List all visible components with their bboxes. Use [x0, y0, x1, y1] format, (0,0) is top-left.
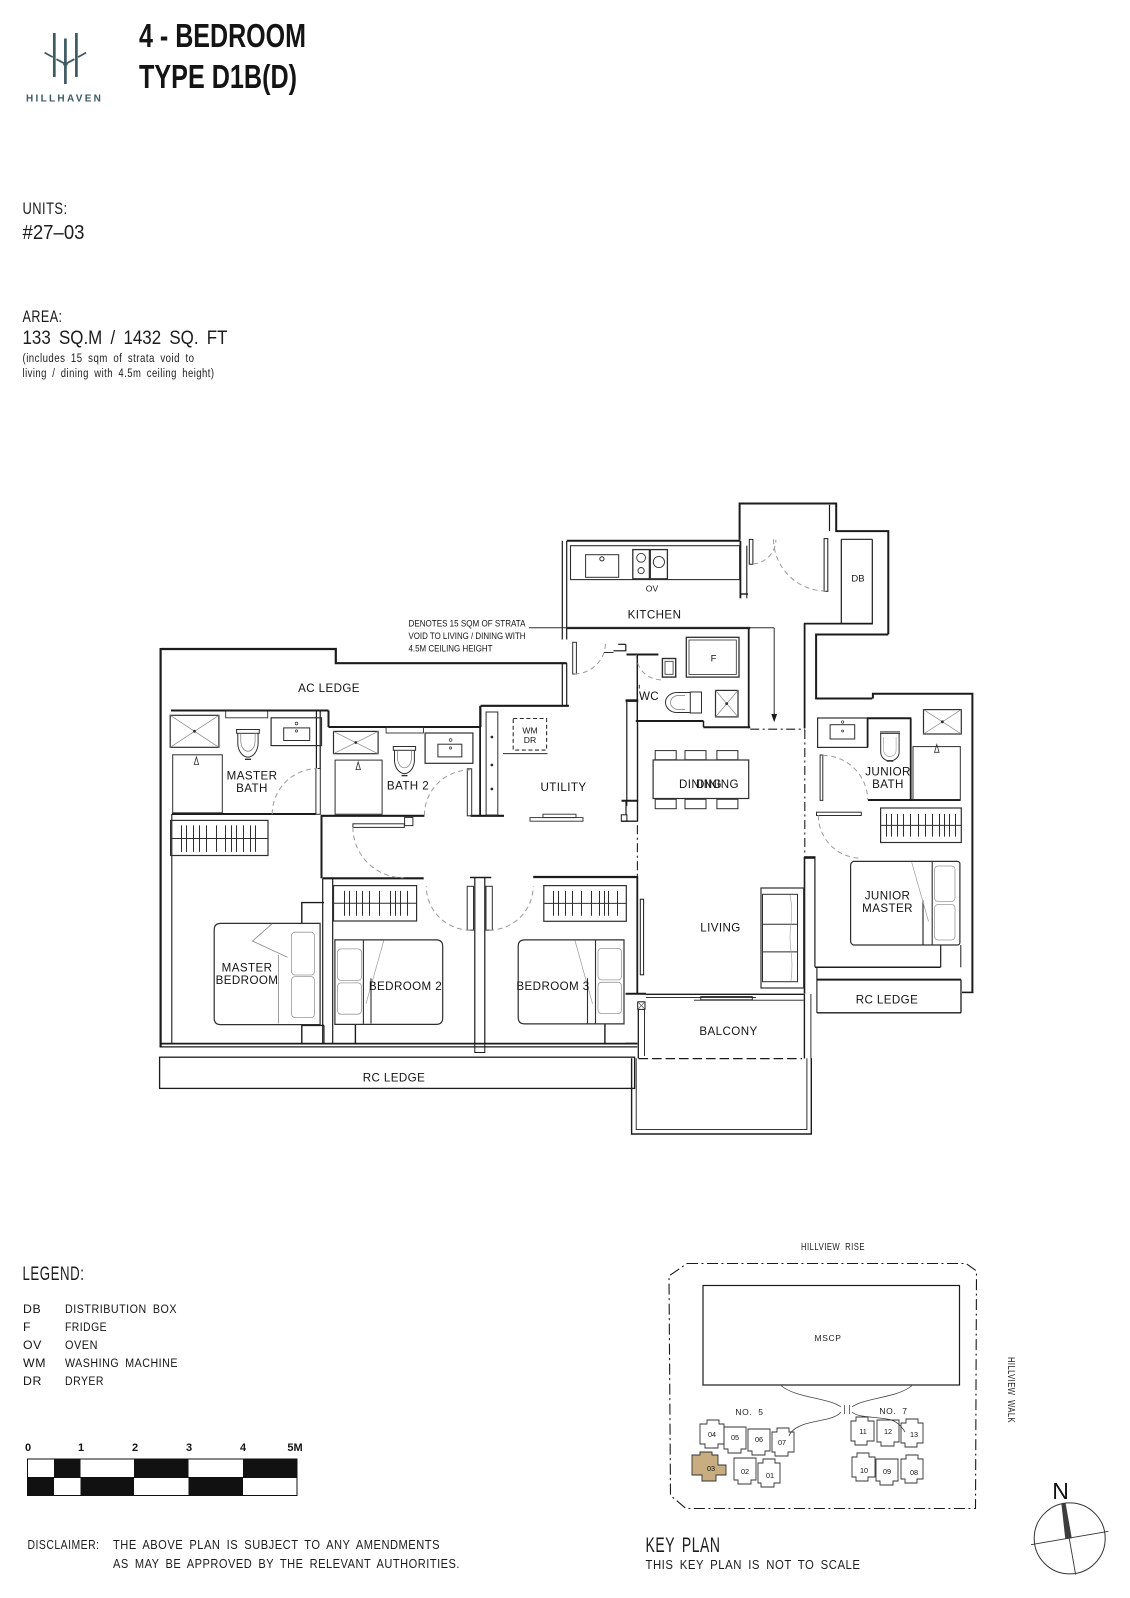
svg-text:4.5M CEILING HEIGHT: 4.5M CEILING HEIGHT [409, 644, 494, 654]
svg-text:DINING: DINING [696, 778, 739, 791]
svg-text:LIVING: LIVING [700, 922, 740, 935]
svg-text:THE ABOVE PLAN IS SUBJECT TO A: THE ABOVE PLAN IS SUBJECT TO ANY AMENDME… [113, 1537, 440, 1552]
svg-text:04: 04 [708, 1430, 716, 1439]
svg-text:DISTRIBUTION BOX: DISTRIBUTION BOX [65, 1302, 177, 1316]
svg-text:BATH: BATH [236, 782, 268, 795]
svg-text:NO. 7: NO. 7 [879, 1406, 907, 1416]
svg-text:DR: DR [23, 1374, 42, 1388]
svg-text:BEDROOM 3: BEDROOM 3 [516, 980, 589, 993]
svg-text:01: 01 [766, 1471, 774, 1480]
svg-text:WC: WC [639, 690, 659, 703]
svg-text:5M: 5M [287, 1442, 302, 1454]
svg-text:13: 13 [910, 1430, 918, 1439]
svg-text:living / dining with 4.5m ceil: living / dining with 4.5m ceiling height… [23, 366, 215, 380]
svg-text:(includes 15 sqm of strata voi: (includes 15 sqm of strata void to [23, 351, 195, 365]
svg-text:VOID TO LIVING / DINING WITH: VOID TO LIVING / DINING WITH [409, 631, 526, 641]
svg-text:HILLVIEW WALK: HILLVIEW WALK [1005, 1357, 1016, 1423]
svg-text:MASTER: MASTER [227, 770, 278, 783]
svg-text:F: F [23, 1320, 31, 1334]
svg-text:UTILITY: UTILITY [541, 781, 587, 794]
svg-text:DISCLAIMER:: DISCLAIMER: [28, 1537, 100, 1552]
svg-text:4 - BEDROOM: 4 - BEDROOM [139, 17, 306, 54]
svg-text:4: 4 [240, 1442, 247, 1454]
svg-text:NO. 5: NO. 5 [735, 1407, 763, 1417]
svg-text:BALCONY: BALCONY [699, 1025, 757, 1038]
svg-text:BEDROOM 2: BEDROOM 2 [369, 980, 442, 993]
svg-text:WM: WM [522, 726, 537, 736]
svg-text:0: 0 [25, 1442, 31, 1454]
svg-text:09: 09 [883, 1467, 891, 1476]
svg-text:MASTER: MASTER [862, 902, 913, 915]
svg-text:BATH 2: BATH 2 [387, 780, 429, 793]
svg-text:2: 2 [132, 1442, 138, 1454]
svg-text:DRYER: DRYER [65, 1374, 104, 1388]
svg-text:THIS KEY PLAN IS NOT TO SCALE: THIS KEY PLAN IS NOT TO SCALE [646, 1557, 861, 1572]
svg-text:RC LEDGE: RC LEDGE [363, 1072, 425, 1085]
svg-text:LEGEND:: LEGEND: [23, 1264, 85, 1285]
svg-text:12: 12 [884, 1427, 892, 1436]
svg-text:BATH: BATH [872, 778, 904, 791]
svg-text:HILLVIEW RISE: HILLVIEW RISE [801, 1242, 865, 1253]
svg-text:BEDROOM: BEDROOM [216, 974, 279, 987]
svg-text:RC LEDGE: RC LEDGE [856, 994, 918, 1007]
svg-text:DENOTES 15 SQM OF STRATA: DENOTES 15 SQM OF STRATA [409, 619, 526, 629]
svg-text:HILLHAVEN: HILLHAVEN [26, 94, 103, 105]
svg-text:TYPE D1B(D): TYPE D1B(D) [139, 58, 297, 95]
svg-text:JUNIOR: JUNIOR [865, 766, 911, 779]
svg-text:MASTER: MASTER [222, 962, 273, 975]
svg-text:WASHING MACHINE: WASHING MACHINE [65, 1356, 178, 1370]
svg-text:DB: DB [851, 574, 864, 585]
svg-text:06: 06 [755, 1435, 763, 1444]
svg-text:KEY PLAN: KEY PLAN [646, 1534, 721, 1557]
svg-text:DR: DR [524, 735, 536, 745]
svg-text:WM: WM [23, 1356, 46, 1370]
svg-text:10: 10 [860, 1466, 868, 1475]
svg-text:MSCP: MSCP [815, 1333, 842, 1343]
svg-text:08: 08 [910, 1468, 918, 1477]
svg-text:KITCHEN: KITCHEN [628, 609, 682, 622]
svg-text:11: 11 [859, 1427, 867, 1436]
svg-text:05: 05 [731, 1433, 739, 1442]
svg-text:OV: OV [23, 1338, 42, 1352]
svg-text:N: N [1052, 1478, 1069, 1504]
svg-text:1: 1 [78, 1442, 84, 1454]
svg-text:AC LEDGE: AC LEDGE [298, 682, 360, 695]
svg-text:07: 07 [778, 1438, 786, 1447]
svg-text:JUNIOR: JUNIOR [865, 890, 911, 903]
svg-text:AREA:: AREA: [23, 308, 63, 326]
svg-text:OVEN: OVEN [65, 1338, 98, 1352]
svg-text:3: 3 [186, 1442, 192, 1454]
svg-text:AS MAY BE APPROVED BY THE RELE: AS MAY BE APPROVED BY THE RELEVANT AUTHO… [113, 1556, 460, 1571]
svg-text:F: F [711, 654, 717, 665]
svg-text:OV: OV [646, 584, 659, 594]
svg-text:FRIDGE: FRIDGE [65, 1320, 107, 1334]
svg-text:#27–03: #27–03 [23, 222, 85, 244]
svg-text:03: 03 [707, 1464, 715, 1473]
svg-text:UNITS:: UNITS: [23, 200, 68, 218]
svg-text:02: 02 [741, 1467, 749, 1476]
svg-text:133 SQ.M / 1432 SQ. FT: 133 SQ.M / 1432 SQ. FT [23, 328, 228, 349]
svg-text:DB: DB [23, 1302, 41, 1316]
